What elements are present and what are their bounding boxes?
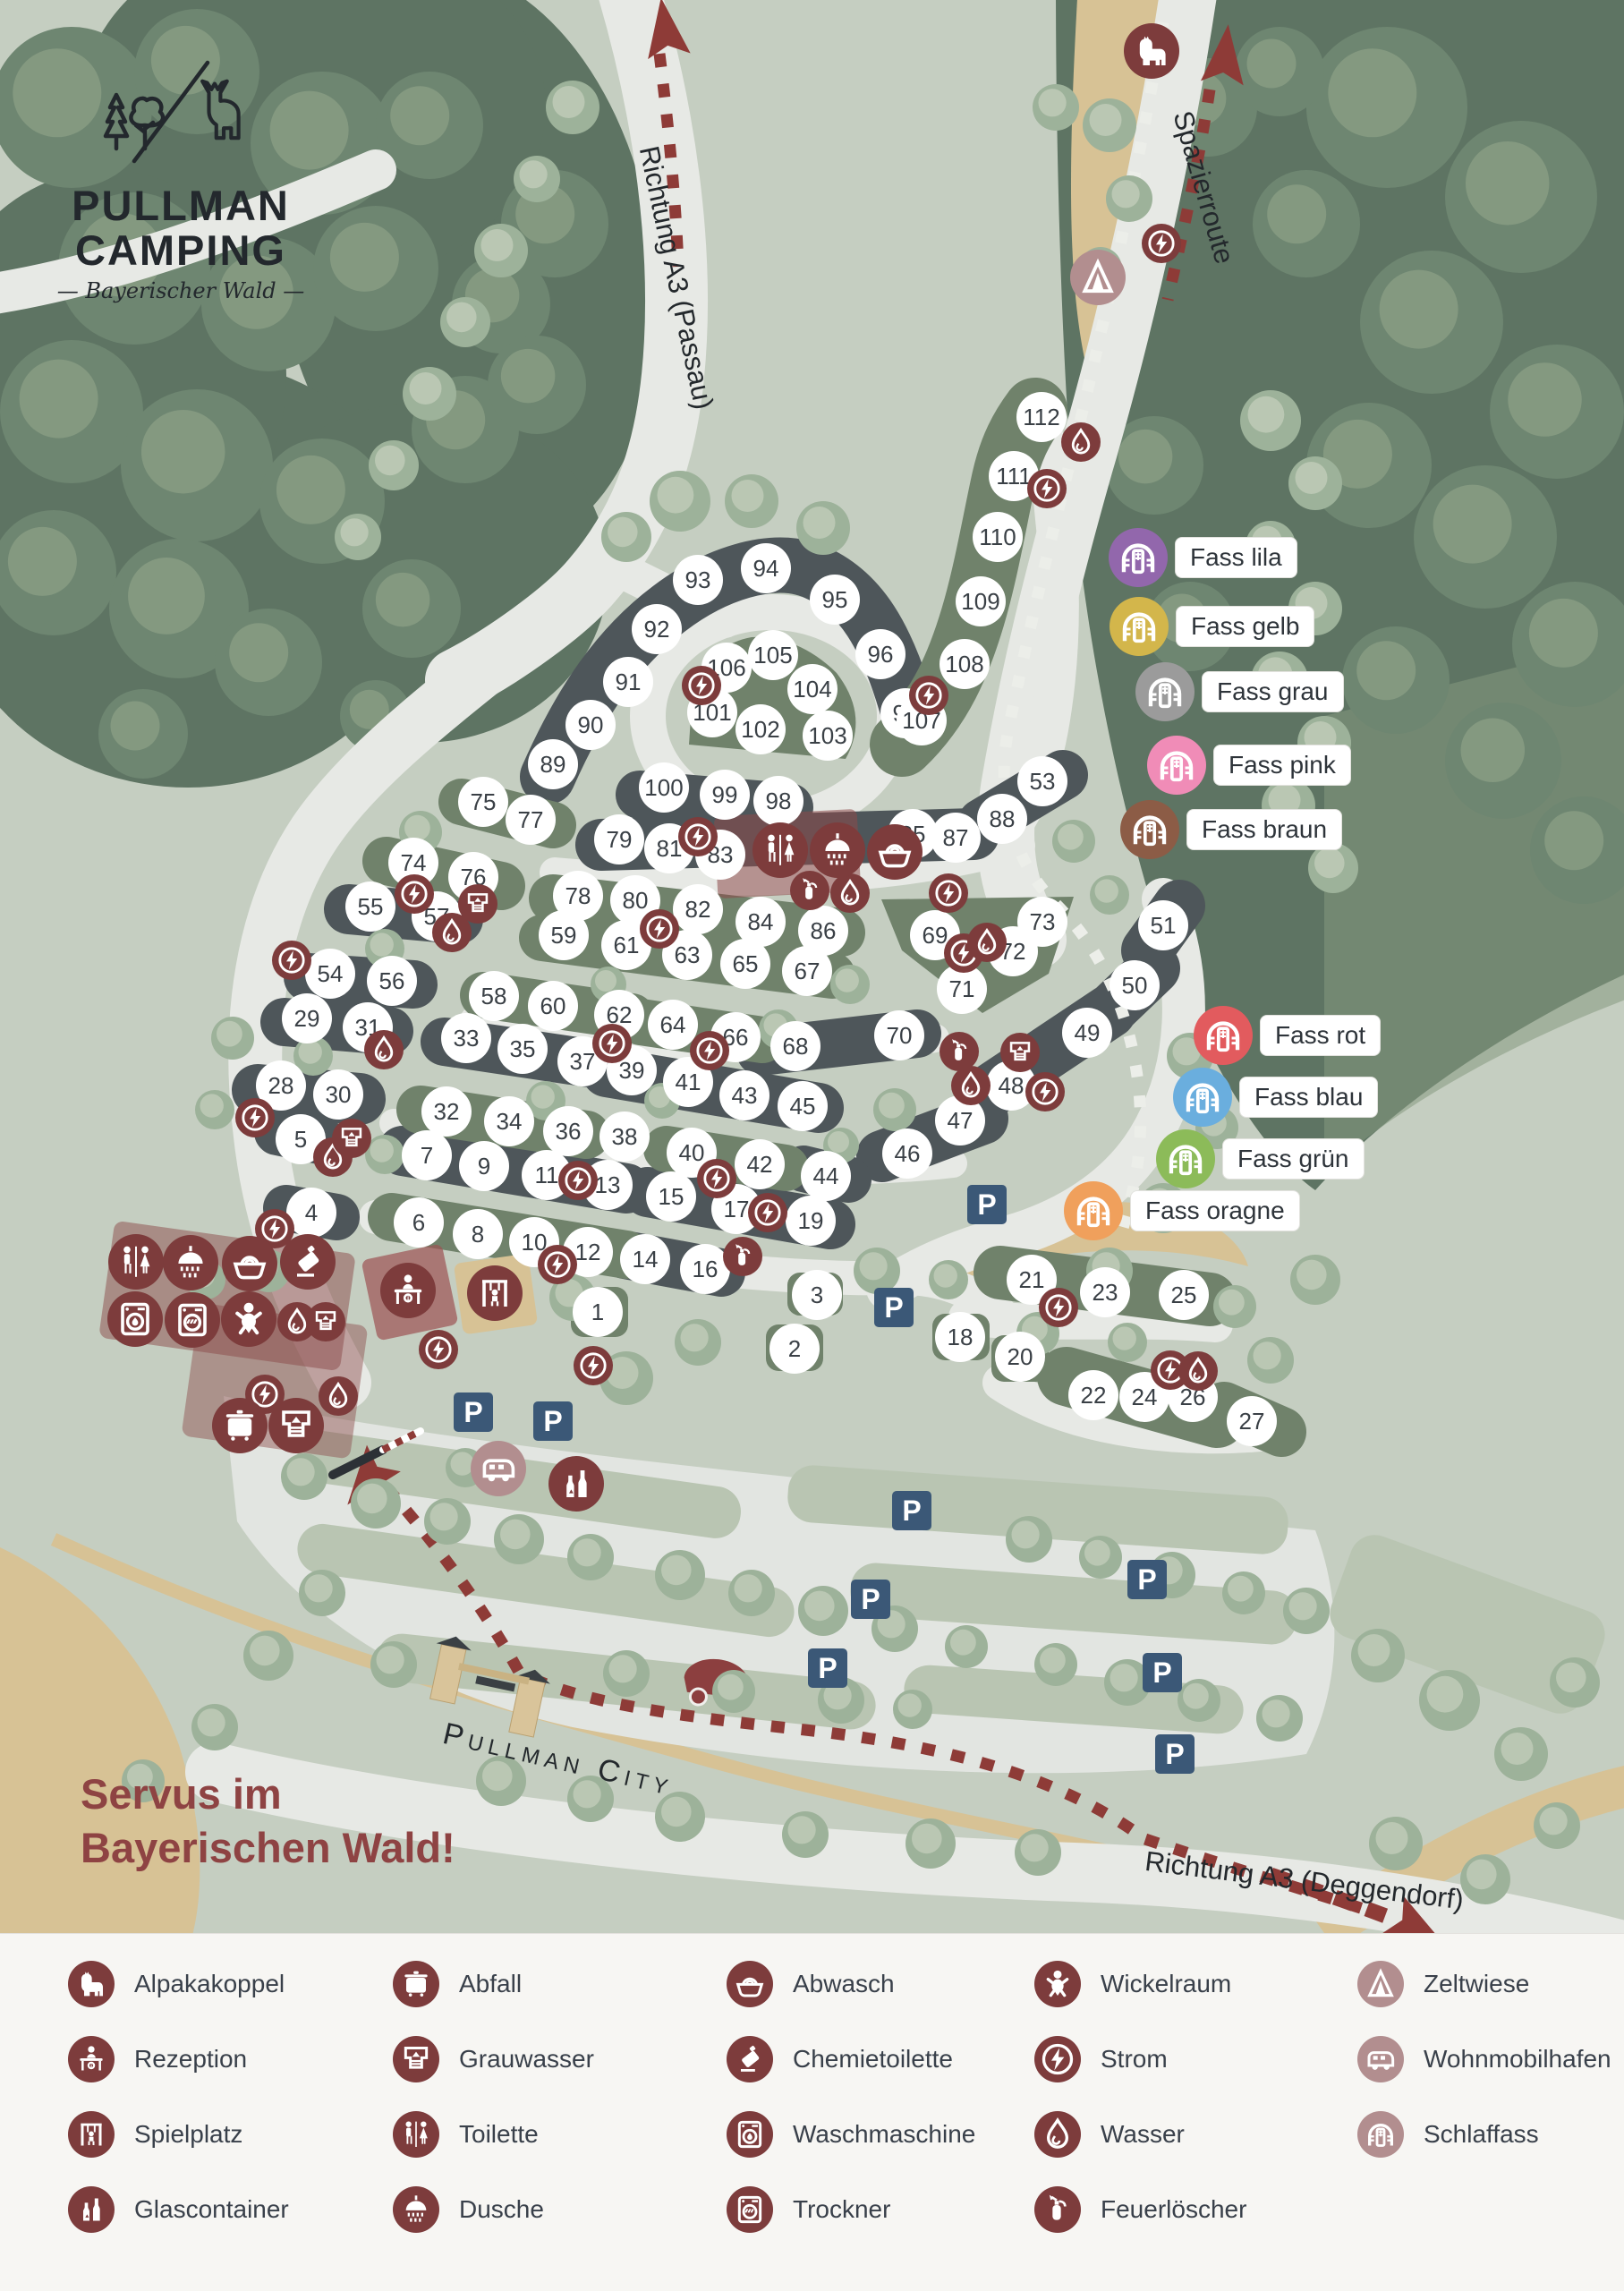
legend-label: Dusche [459,2195,544,2224]
legend-item-schlaffass: Schlaffass [1357,2111,1539,2158]
strom-icon [694,1035,725,1066]
strom-icon [423,1334,454,1365]
site-marker-32: 32 [421,1086,472,1137]
legend-label: Glascontainer [134,2195,289,2224]
site-marker-29: 29 [282,993,332,1043]
site-marker-27: 27 [1227,1396,1277,1446]
strom-icon [701,1163,732,1194]
site-marker-44: 44 [801,1151,851,1201]
legend-item-spielplatz: Spielplatz [68,2111,242,2158]
abfall-icon [212,1398,268,1453]
legend-label: Alpakakoppel [134,1970,285,1998]
strom-icon [276,945,307,975]
glascontainer-icon [73,2192,109,2227]
legend-label: Spielplatz [134,2120,242,2149]
site-marker-93: 93 [673,555,723,605]
schlaffass-icon-fass-pink [1147,736,1206,795]
abfall-icon [398,1966,434,2002]
site-marker-54: 54 [305,949,355,999]
wasser-icon [1066,427,1096,457]
site-marker-79: 79 [594,814,644,864]
legend-label: Feuerlöscher [1101,2195,1246,2224]
parking-icon: P [892,1491,931,1530]
site-marker-91: 91 [603,657,653,707]
legend-panel: AlpakakoppelRezeptionSpielplatzGlasconta… [0,1933,1624,2291]
dusche-icon [816,829,859,872]
wasser-icon [364,1030,404,1069]
wohnmobilhafen-icon [1363,2041,1399,2077]
schlaffass-icon [1070,1188,1117,1234]
grauwasser-icon [1000,1033,1040,1072]
grauwasser-icon [458,884,497,924]
abwasch-icon [873,830,916,873]
feuerloescher-icon [727,1241,758,1272]
grauwasser-icon [1005,1037,1035,1068]
legend-item-strom: Strom [1034,2036,1168,2082]
trockner-icon [171,1299,214,1341]
site-marker-30: 30 [313,1069,363,1120]
wasser-icon [956,1070,986,1101]
site-marker-100: 100 [639,762,689,813]
schlaffass-icon-fass-blau [1173,1068,1232,1127]
strom-icon [752,1197,783,1228]
strom-icon [597,1028,627,1059]
wasser-icon [972,927,1002,958]
site-marker-84: 84 [735,897,786,947]
spielplatz-icon [473,1272,516,1315]
grauwasser-icon [398,2041,434,2077]
dusche-icon [169,1241,212,1284]
strom-icon [1040,2041,1076,2077]
legend-label: Abwasch [793,1970,895,1998]
strom-icon [929,873,968,913]
strom-icon [578,1350,608,1381]
parking-icon: P [1127,1560,1167,1599]
parking-icon: P [1143,1653,1182,1692]
strom-icon [399,879,429,909]
legend-label: Waschmaschine [793,2120,975,2149]
wasser-icon [1183,1356,1213,1386]
schlaffass-icon [1363,2116,1399,2152]
parking-icon: P [533,1401,573,1441]
site-marker-22: 22 [1068,1370,1118,1420]
site-marker-35: 35 [497,1024,548,1074]
site-marker-19: 19 [786,1196,836,1246]
schlaffass-icon-fass-braun [1120,800,1179,859]
parking-icon: P [967,1185,1007,1224]
site-marker-45: 45 [778,1081,828,1131]
legend-label: Abfall [459,1970,522,1998]
strom-icon [538,1245,577,1284]
legend-item-toilette: Toilette [393,2111,539,2158]
toilette-icon [108,1234,164,1290]
rezeption-icon [73,2041,109,2077]
parking-icon: P [1155,1734,1195,1774]
strom-icon [686,670,717,701]
legend-item-wohnmobilhafen: Wohnmobilhafen [1357,2036,1611,2082]
strom-icon [690,1031,729,1070]
site-marker-9: 9 [459,1141,509,1191]
fass-label: Fass pink [1214,745,1350,785]
site-marker-36: 36 [543,1106,593,1156]
site-marker-102: 102 [735,704,786,754]
abwasch-icon [732,1966,768,2002]
site-marker-108: 108 [940,639,990,689]
strom-icon [272,941,311,980]
strom-icon [1025,1072,1065,1111]
strom-icon [235,1098,275,1137]
wasser-icon [319,1376,358,1416]
legend-label: Wohnmobilhafen [1424,2045,1611,2074]
site-marker-6: 6 [394,1197,444,1248]
legend-item-chemietoilette: Chemietoilette [727,2036,953,2082]
rezeption-icon [380,1263,436,1318]
site-marker-82: 82 [673,884,723,934]
site-marker-42: 42 [735,1139,785,1189]
strom-icon [909,676,948,715]
wohnmobilhafen-icon [477,1447,520,1490]
parking-icon: P [851,1580,890,1619]
wasser-icon [1178,1351,1218,1391]
strom-icon [748,1193,787,1232]
site-marker-96: 96 [855,629,906,679]
parking-icon: P [808,1648,847,1688]
wasser-icon [951,1066,991,1105]
wasser-icon [967,923,1007,962]
schlaffass-icon-fass-grün [1156,1129,1215,1188]
strom-icon [240,1103,270,1133]
grauwasser-icon [332,1119,371,1158]
strom-icon [640,909,679,949]
strom-icon [1043,1292,1074,1323]
site-marker-98: 98 [753,776,803,826]
spielplatz-icon [73,2116,109,2152]
site-marker-87: 87 [931,813,981,863]
site-marker-14: 14 [620,1234,670,1284]
rezeption-icon [387,1269,429,1312]
site-marker-3: 3 [792,1270,842,1320]
site-marker-23: 23 [1080,1267,1130,1317]
legend-label: Rezeption [134,2045,247,2074]
fass-label: Fass braun [1187,810,1341,849]
strom-icon [678,817,718,856]
site-marker-103: 103 [803,711,853,761]
schlaffass-icon [1162,1136,1209,1182]
feuerloescher-icon [795,875,825,906]
site-marker-33: 33 [441,1013,491,1063]
toilette-icon [752,822,808,878]
wohnmobilhafen-icon [471,1441,526,1496]
legend-item-grauwasser: Grauwasser [393,2036,594,2082]
site-marker-53: 53 [1017,756,1067,806]
dusche-icon [398,2192,434,2227]
abwasch-icon [228,1242,271,1285]
wasser-icon [437,917,467,948]
schlaffass-icon [1142,669,1188,715]
fass-label: Fass blau [1240,1077,1377,1117]
site-marker-70: 70 [874,1010,924,1060]
site-marker-2: 2 [769,1324,820,1374]
alpakakoppel-icon [1130,30,1173,72]
waschmaschine-icon [732,2116,768,2152]
legend-label: Grauwasser [459,2045,594,2074]
grauwasser-icon [306,1302,345,1341]
site-marker-112: 112 [1016,392,1067,442]
site-marker-51: 51 [1138,900,1188,950]
legend-item-wasser: Wasser [1034,2111,1185,2158]
site-marker-60: 60 [528,981,578,1031]
site-marker-18: 18 [935,1312,985,1362]
legend-item-dusche: Dusche [393,2186,544,2233]
legend-label: Zeltwiese [1424,1970,1529,1998]
feuerloescher-icon [940,1032,979,1071]
toilette-icon [398,2116,434,2152]
schlaffass-icon [1200,1012,1246,1059]
schlaffass-icon-fass-lila [1109,528,1168,587]
strom-icon [563,1165,593,1196]
legend-item-abwasch: Abwasch [727,1961,895,2007]
campsite-map-poster: PULLMAN CAMPING — Bayerischer Wald — Ric… [0,0,1624,2291]
strom-icon [542,1249,573,1280]
site-marker-99: 99 [700,770,750,820]
abfall-icon [218,1404,261,1447]
waschmaschine-icon [107,1291,163,1347]
legend-item-feuerloescher: Feuerlöscher [1034,2186,1246,2233]
zeltwiese-icon [1076,256,1119,299]
site-marker-78: 78 [553,871,603,921]
site-marker-15: 15 [646,1171,696,1222]
site-marker-1: 1 [573,1287,623,1337]
site-marker-110: 110 [973,512,1023,562]
site-marker-105: 105 [748,630,798,680]
legend-item-trockner: Trockner [727,2186,890,2233]
feuerloescher-icon [944,1036,974,1067]
strom-icon [558,1161,598,1200]
site-marker-109: 109 [956,576,1006,626]
wickelraum-icon [1040,1966,1076,2002]
site-marker-46: 46 [882,1128,932,1179]
site-marker-34: 34 [484,1096,534,1146]
schlaffass-icon-fass-oragne [1064,1181,1123,1240]
site-marker-58: 58 [469,971,519,1021]
toilette-icon [759,829,802,872]
chemietoilette-icon [280,1234,336,1290]
legend-item-waschmaschine: Waschmaschine [727,2111,975,2158]
site-marker-64: 64 [648,1000,698,1050]
spielplatz-icon [467,1265,523,1321]
strom-icon [914,680,944,711]
schlaffass-icon [1116,603,1162,650]
feuerloescher-icon [1040,2192,1076,2227]
wasser-icon [1061,422,1101,462]
waschmaschine-icon [114,1298,157,1341]
zeltwiese-icon [1070,250,1126,305]
strom-icon [395,874,434,914]
site-marker-49: 49 [1062,1008,1112,1058]
toilette-icon [115,1240,157,1283]
site-marker-20: 20 [995,1332,1045,1382]
zeltwiese-icon [1363,1966,1399,2002]
site-marker-25: 25 [1159,1270,1209,1320]
grauwasser-icon [463,889,493,919]
trockner-icon [732,2192,768,2227]
legend-item-zeltwiese: Zeltwiese [1357,1961,1529,2007]
wasser-icon [369,1035,399,1065]
strom-icon [1032,473,1062,504]
wickelraum-icon [221,1291,276,1347]
parking-icon: P [454,1392,493,1432]
abwasch-icon [867,824,923,880]
schlaffass-icon-fass-gelb [1110,597,1169,656]
feuerloescher-icon [723,1237,762,1276]
alpakakoppel-icon [73,1966,109,2002]
site-marker-95: 95 [810,575,860,625]
wasser-icon [835,878,865,908]
abwasch-icon [222,1236,277,1291]
legend-item-wickelraum: Wickelraum [1034,1961,1231,2007]
legend-label: Chemietoilette [793,2045,953,2074]
wasser-icon [1040,2116,1076,2152]
legend-label: Schlaffass [1424,2120,1539,2149]
strom-icon [1146,228,1177,259]
site-marker-50: 50 [1110,960,1160,1010]
site-marker-8: 8 [453,1209,503,1259]
site-marker-68: 68 [770,1021,821,1071]
strom-icon [419,1330,458,1369]
site-marker-56: 56 [367,956,417,1006]
legend-item-alpakakoppel: Alpakakoppel [68,1961,285,2007]
grauwasser-icon [310,1307,341,1337]
strom-icon [1030,1077,1060,1107]
marker-layer: 1234567891011121314151617181920212223242… [0,0,1624,1933]
glascontainer-icon [548,1456,604,1512]
site-marker-75: 75 [458,777,508,827]
schlaffass-icon-fass-rot [1194,1006,1253,1065]
site-marker-92: 92 [632,604,682,654]
strom-icon [1039,1288,1078,1327]
trockner-icon [165,1292,220,1348]
legend-item-abfall: Abfall [393,1961,522,2007]
strom-icon [592,1024,632,1063]
site-marker-90: 90 [565,700,616,750]
strom-icon [1027,469,1067,508]
fass-label: Fass grau [1203,672,1343,711]
legend-item-rezeption: Rezeption [68,2036,247,2082]
site-marker-55: 55 [345,881,395,932]
site-marker-94: 94 [741,543,791,593]
chemietoilette-icon [286,1240,329,1283]
feuerloescher-icon [790,871,829,910]
fass-label: Fass oragne [1131,1191,1299,1231]
chemietoilette-icon [732,2041,768,2077]
fass-label: Fass gelb [1177,607,1314,646]
strom-icon [933,878,964,908]
fass-label: Fass grün [1223,1139,1364,1179]
fass-label: Fass lila [1176,538,1297,577]
wasser-icon [830,873,870,913]
schlaffass-icon [1153,742,1200,788]
strom-icon [682,666,721,705]
legend-label: Trockner [793,2195,890,2224]
site-marker-104: 104 [787,664,838,714]
strom-icon [697,1159,736,1198]
legend-item-glascontainer: Glascontainer [68,2186,289,2233]
schlaffass-icon [1115,534,1161,581]
grauwasser-icon [336,1123,367,1154]
schlaffass-icon [1179,1074,1226,1120]
legend-label: Wasser [1101,2120,1185,2149]
wickelraum-icon [227,1298,270,1341]
strom-icon [574,1346,613,1385]
site-marker-77: 77 [506,795,556,845]
schlaffass-icon [1127,806,1173,853]
grauwasser-icon [268,1398,324,1453]
legend-label: Toilette [459,2120,539,2149]
strom-icon [1142,224,1181,263]
wasser-icon [323,1381,353,1411]
strom-icon [644,914,675,944]
site-marker-43: 43 [719,1070,769,1120]
dusche-icon [810,822,865,878]
schlaffass-icon-fass-grau [1135,662,1195,721]
dusche-icon [163,1235,218,1290]
legend-label: Strom [1101,2045,1168,2074]
parking-icon: P [874,1288,914,1327]
fass-label: Fass rot [1261,1016,1380,1055]
site-marker-88: 88 [977,794,1027,844]
site-marker-38: 38 [599,1111,650,1162]
strom-icon [683,822,713,852]
legend-label: Wickelraum [1101,1970,1231,1998]
site-marker-7: 7 [402,1130,452,1180]
site-marker-89: 89 [528,739,578,789]
alpakakoppel-icon [1124,23,1179,79]
site-marker-86: 86 [798,906,848,956]
glascontainer-icon [555,1462,598,1505]
grauwasser-icon [275,1404,318,1447]
site-marker-73: 73 [1017,897,1067,947]
